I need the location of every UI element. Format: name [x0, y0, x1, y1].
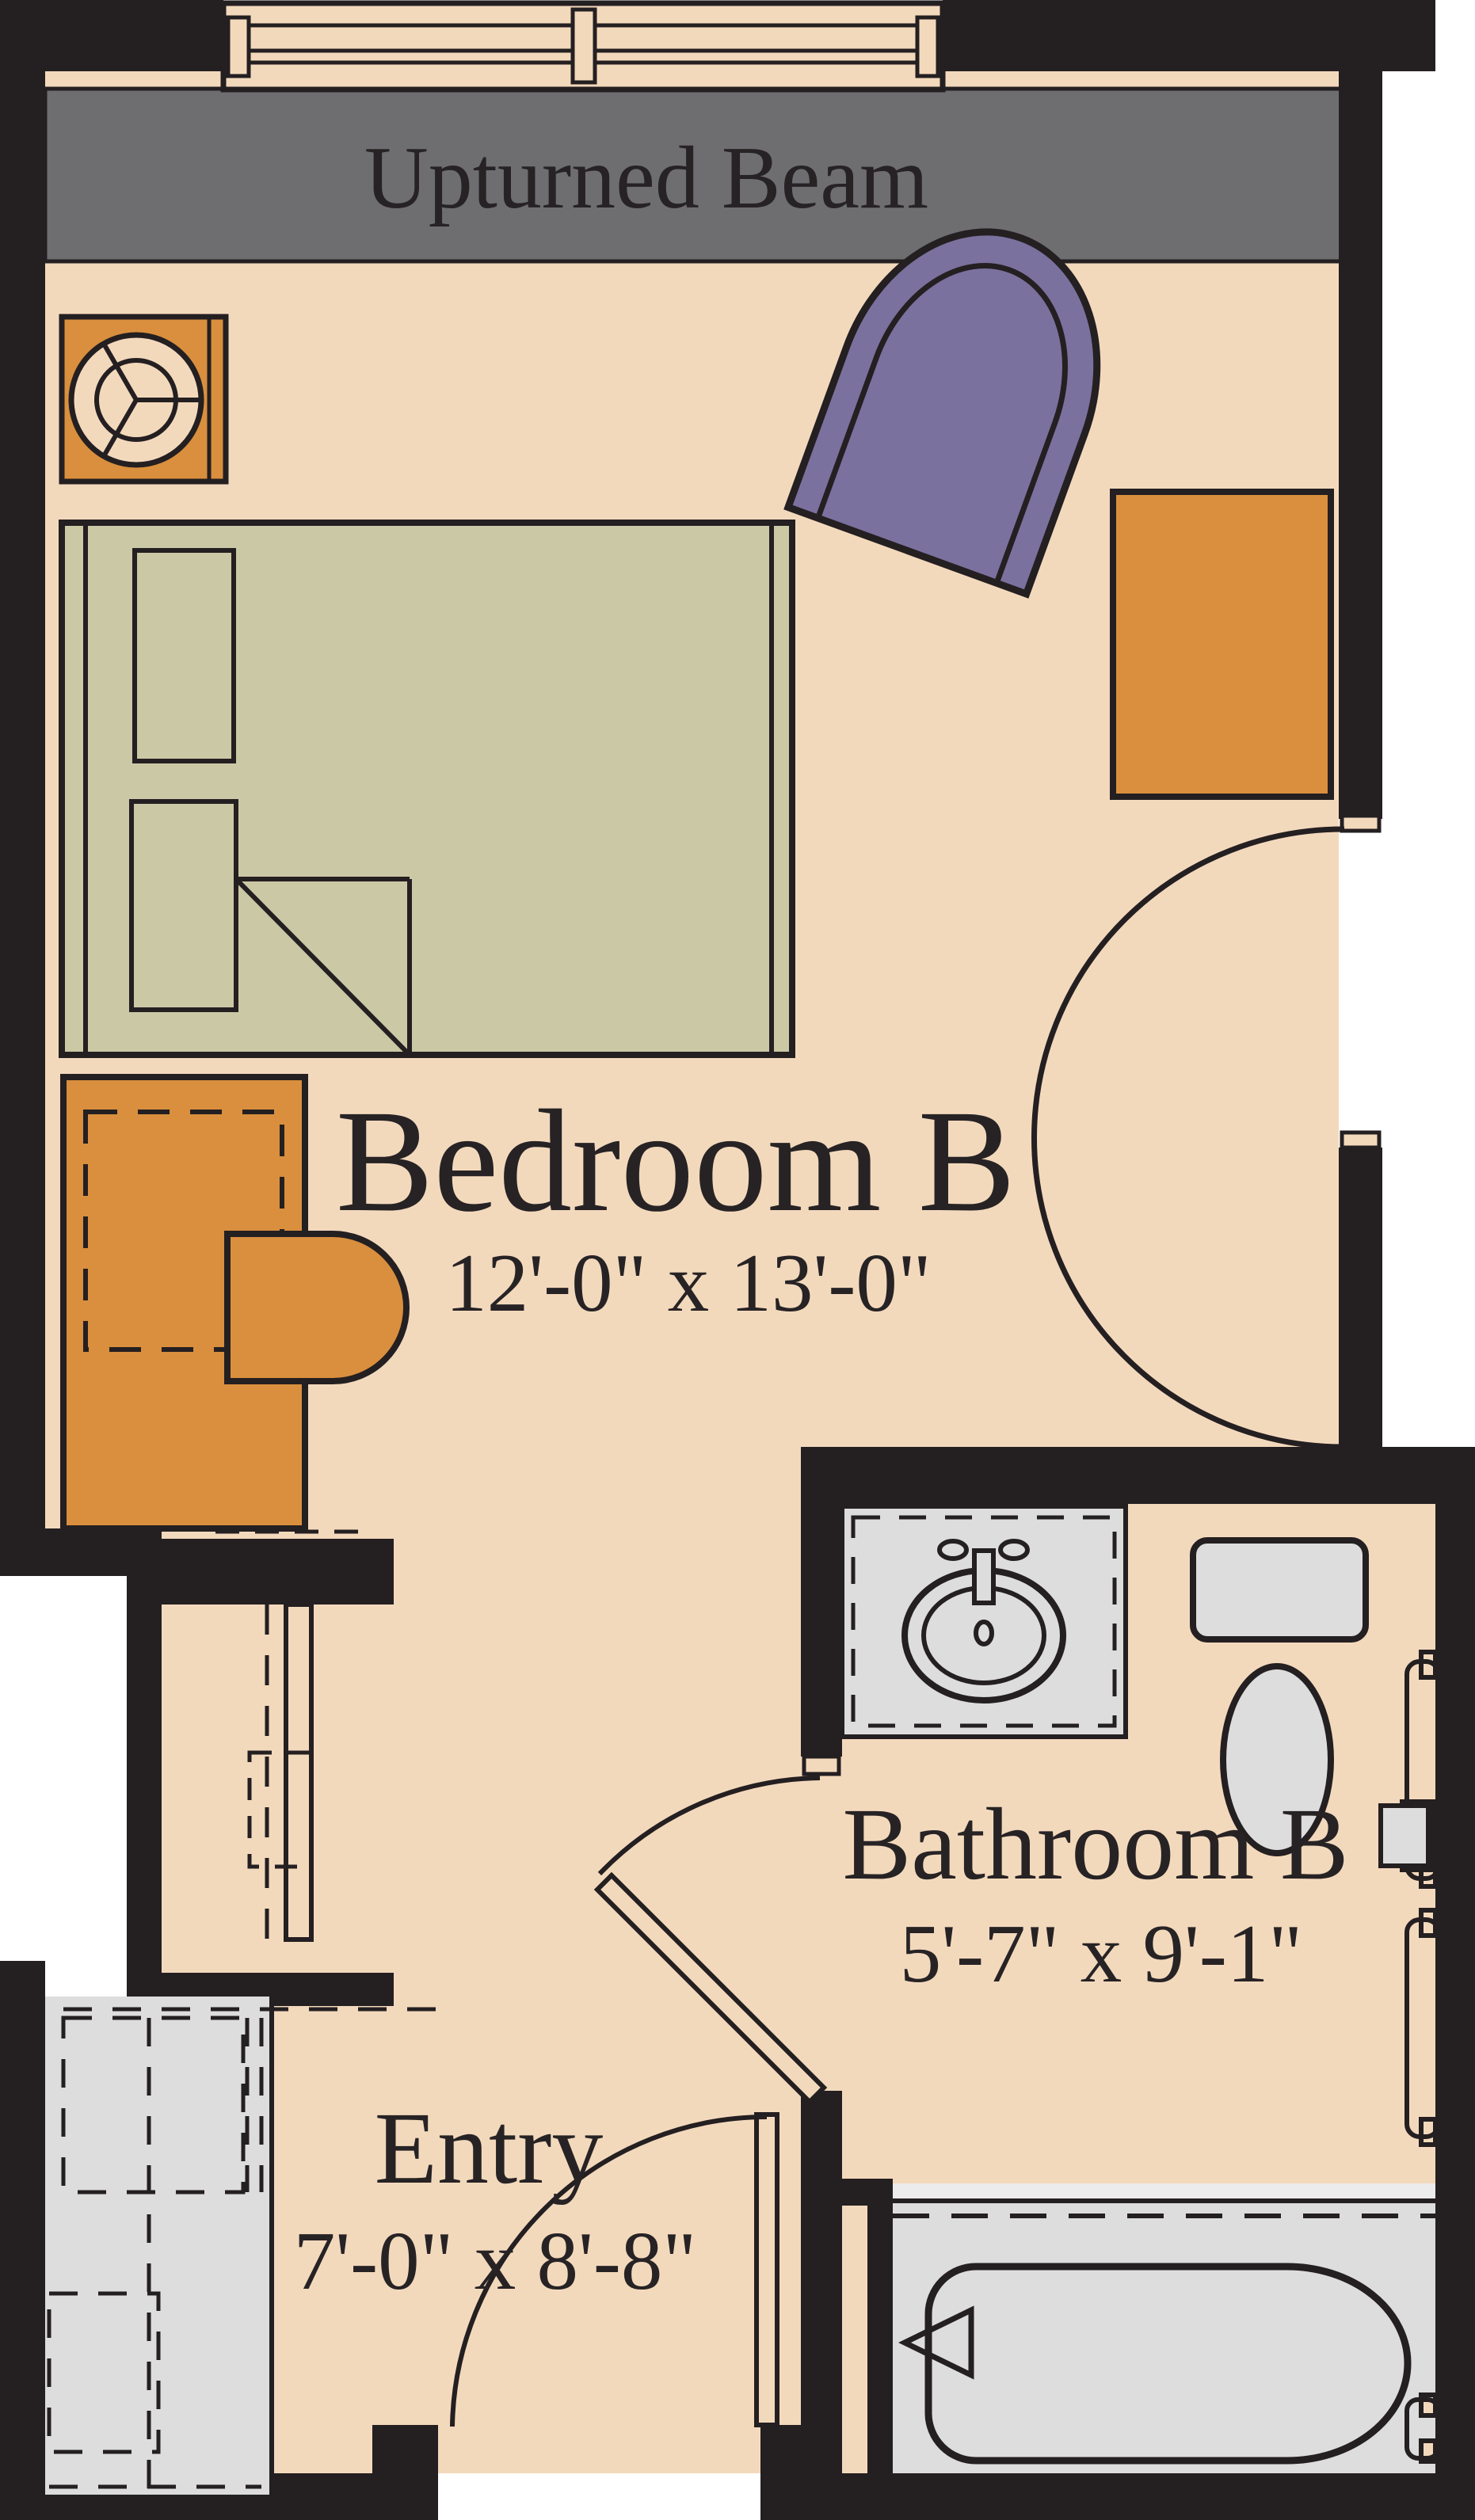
bathtub-area	[893, 2183, 1439, 2473]
closet-floor	[45, 1997, 272, 2495]
bedroom-label: Bedroom B	[336, 1080, 1016, 1243]
sink-handle	[940, 1541, 966, 1559]
bedroom-dimensions: 12'-0" x 13'-0"	[445, 1236, 932, 1329]
sink-handle	[1000, 1541, 1027, 1559]
pocket-door-panel	[286, 1605, 311, 1939]
wall-tubroom-stub	[842, 2179, 893, 2206]
vanity-sink-icon	[842, 1506, 1126, 1737]
window-mullion	[573, 10, 595, 82]
bedroom-door-jamb-bottom	[1342, 1132, 1379, 1148]
pillow-icon	[131, 801, 236, 1010]
entry-label: Entry	[375, 2092, 604, 2206]
window-icon	[223, 3, 943, 89]
floor-plan-canvas: Upturned Beam Bedroom B 12'-0" x 13'-0" …	[0, 0, 1475, 2520]
tub-floor	[893, 2183, 1435, 2473]
toilet-paper-holder-icon	[1381, 1799, 1435, 1872]
wall-entry-right	[801, 2091, 842, 2520]
wall-right-mid	[1339, 1148, 1382, 1447]
fan-table-icon	[62, 317, 226, 482]
sink-drain	[976, 1622, 992, 1644]
wall-passage-left	[127, 1576, 162, 1973]
wall-bathroom-left	[801, 1447, 842, 1757]
window-mullion	[917, 17, 938, 76]
bathroom-label: Bathroom B	[842, 1787, 1348, 1901]
wall-passage-top	[158, 1539, 394, 1605]
bathroom-dimensions: 5'-7" x 9'-1"	[900, 1907, 1303, 2000]
desk-chair-icon	[227, 1234, 406, 1381]
pillow-icon	[135, 550, 234, 761]
entry-door-jamb-left	[372, 2425, 438, 2520]
tub-threshold	[893, 2183, 1435, 2199]
wall-tubroom-left	[867, 2179, 893, 2520]
wall-right-upper	[1339, 49, 1382, 819]
wall-left-upper	[0, 0, 45, 1532]
outside-notch-left	[0, 1576, 127, 1961]
tp-dispenser	[1381, 1806, 1428, 1866]
bathroom-door-jamb	[804, 1757, 839, 1774]
wall-bathroom-top	[801, 1447, 1475, 1504]
entry-door-jamb-right	[760, 2425, 806, 2520]
entry-door-leaf	[757, 2115, 777, 2425]
dresser-icon	[1113, 492, 1331, 797]
window-mullion	[228, 17, 249, 76]
bed-icon	[62, 523, 792, 1055]
wall-left-lower	[0, 1961, 45, 2520]
floor-plan-page: Upturned Beam Bedroom B 12'-0" x 13'-0" …	[0, 0, 1475, 2520]
toilet-tank	[1193, 1540, 1366, 1639]
wall-left-stub	[0, 1528, 162, 1576]
entry-dimensions: 7'-0" x 8'-8"	[294, 2214, 697, 2307]
bedroom-door-jamb-top	[1342, 816, 1379, 831]
outside-notch-right	[1382, 71, 1475, 1447]
wall-bottom-right	[806, 2473, 1475, 2520]
sink-faucet	[974, 1551, 993, 1603]
wall-bathroom-right	[1435, 1504, 1475, 2520]
beam-label: Upturned Beam	[364, 129, 928, 227]
